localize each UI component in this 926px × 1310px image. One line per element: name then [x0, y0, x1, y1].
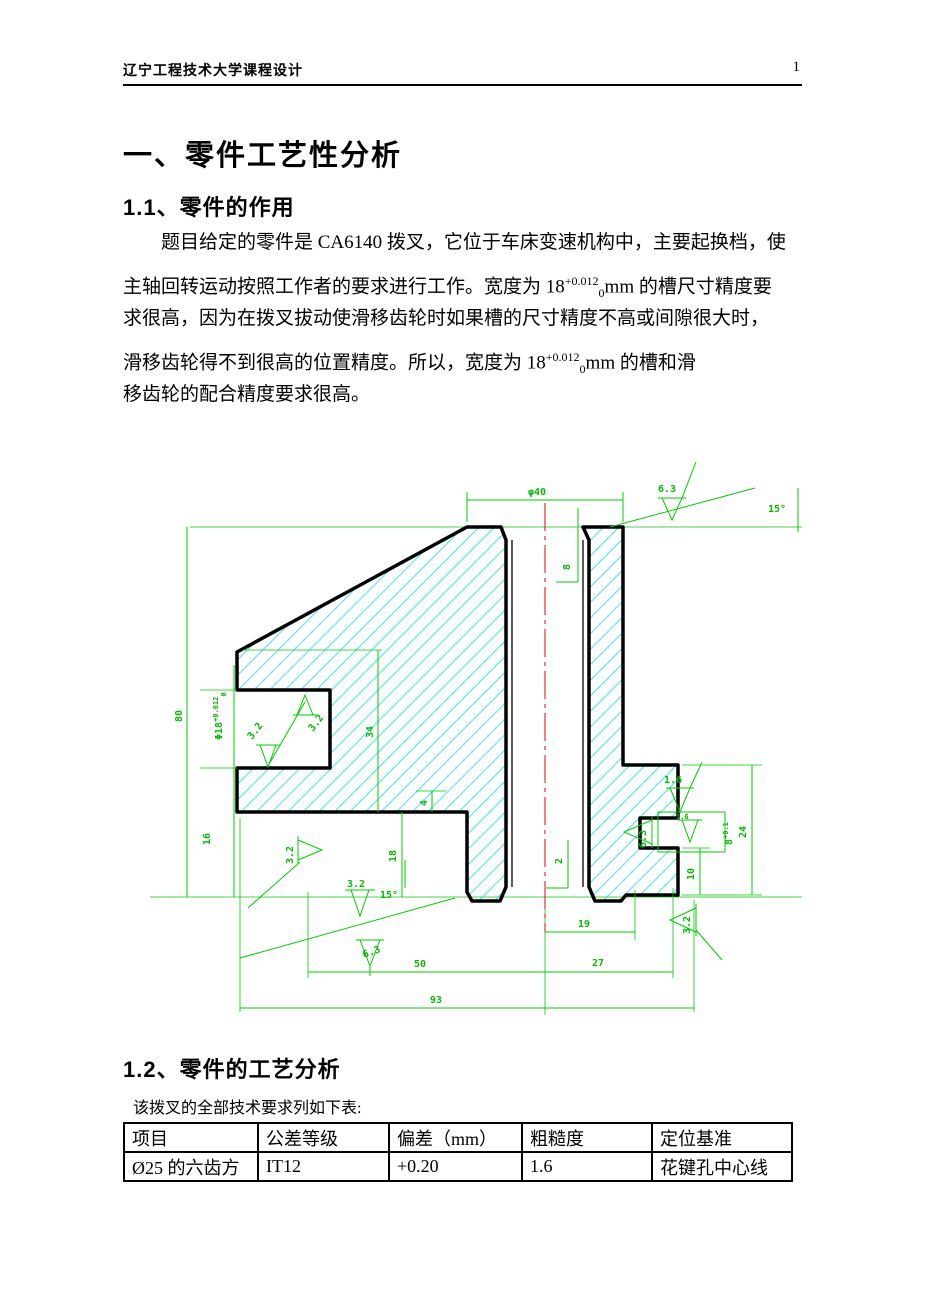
- part-section: [237, 527, 678, 901]
- tolerance-superscript: +0.012: [565, 274, 599, 288]
- roughness-slot-bottom: 3.2: [246, 721, 266, 742]
- paragraph-line: 主轴回转运动按照工作者的要求进行工作。宽度为 18+0.0120mm 的槽尺寸精…: [123, 262, 803, 300]
- chapter-title: 一、零件工艺性分析: [123, 132, 402, 174]
- col-header-tolerance-grade: 公差等级: [258, 1123, 389, 1152]
- body-paragraph: 题目给定的零件是 CA6140 拨叉，它位于车床变速机构中，主要起换档，使 主轴…: [123, 224, 803, 414]
- line-text: 滑移齿轮得不到很高的位置精度。所以，宽度为 18: [123, 352, 546, 373]
- paragraph-line: 求很高，因为在拨叉拔动使滑移齿轮时如果槽的尺寸精度不高或间隙很大时，: [123, 300, 803, 338]
- angle-top: 15°: [768, 504, 786, 515]
- dim-4: 4: [419, 800, 430, 806]
- roughness-side: 3.2: [285, 846, 296, 864]
- roughness-notch-side: 6.3: [638, 830, 649, 848]
- dim-phi40: φ40: [528, 487, 546, 498]
- roughness-slot-top: 3.2: [307, 713, 327, 734]
- page-number: 1: [793, 59, 801, 76]
- dim-phi18: Φ18+0.0120: [212, 692, 228, 740]
- col-header-roughness: 粗糙度: [522, 1123, 652, 1152]
- roughness-mid: 3.2: [347, 879, 365, 890]
- dim-27: 27: [592, 958, 604, 969]
- paragraph-line: 移齿轮的配合精度要求很高。: [123, 376, 803, 414]
- dim-80: 80: [174, 710, 185, 722]
- dim-8: 8: [562, 564, 573, 570]
- dim-19: 19: [578, 919, 590, 930]
- table-row: Ø25 的六齿方 IT12 +0.20 1.6 花键孔中心线: [124, 1152, 792, 1181]
- line-text: mm 的槽尺寸精度要: [605, 276, 772, 297]
- dim-10: 10: [686, 868, 697, 880]
- dim-18: 18: [388, 850, 399, 862]
- cell-datum: 花键孔中心线: [652, 1152, 792, 1181]
- roughness-notch: 1.6: [676, 813, 689, 821]
- section-1-1-heading: 1.1、零件的作用: [123, 190, 295, 222]
- page-header: 辽宁工程技术大学课程设计 1: [123, 56, 802, 86]
- paragraph-line: 题目给定的零件是 CA6140 拨叉，它位于车床变速机构中，主要起换档，使: [123, 224, 803, 262]
- tolerance-superscript: +0.012: [546, 350, 580, 364]
- cell-deviation: +0.20: [389, 1152, 522, 1181]
- col-header-datum: 定位基准: [652, 1123, 792, 1152]
- col-header-deviation: 偏差（mm）: [389, 1123, 522, 1152]
- roughness-top: 6.3: [658, 484, 676, 495]
- part-drawing: φ40 6.3 15° 8 80 Φ18+0.0120 16 34: [130, 440, 810, 1025]
- roughness-bottom: 6.3: [361, 944, 382, 961]
- dim-16: 16: [202, 833, 213, 845]
- col-header-item: 项目: [124, 1123, 258, 1152]
- part-right-half: [583, 527, 678, 901]
- line-text: 主轴回转运动按照工作者的要求进行工作。宽度为 18: [123, 276, 565, 297]
- table-intro: 该拨叉的全部技术要求列如下表:: [133, 1094, 361, 1118]
- table-header-row: 项目 公差等级 偏差（mm） 粗糙度 定位基准: [124, 1123, 792, 1152]
- dim-notch-8: 8+0.1: [722, 822, 735, 845]
- header-title: 辽宁工程技术大学课程设计: [123, 60, 303, 80]
- dim-24: 24: [738, 826, 749, 838]
- paragraph-line: 滑移齿轮得不到很高的位置精度。所以，宽度为 18+0.0120mm 的槽和滑: [123, 338, 803, 376]
- dim-2: 2: [554, 858, 565, 864]
- dim-93: 93: [430, 995, 442, 1006]
- dim-50: 50: [414, 959, 426, 970]
- cell-item: Ø25 的六齿方: [124, 1152, 258, 1181]
- roughness-right: 3.2: [682, 916, 693, 934]
- roughness-lug: 1.6: [664, 775, 682, 786]
- part-left-half: [237, 527, 506, 901]
- cell-roughness: 1.6: [522, 1152, 652, 1181]
- line-text: mm 的槽和滑: [586, 352, 696, 373]
- requirements-table: 项目 公差等级 偏差（mm） 粗糙度 定位基准 Ø25 的六齿方 IT12 +0…: [123, 1122, 793, 1182]
- document-page: 辽宁工程技术大学课程设计 1 一、零件工艺性分析 1.1、零件的作用 题目给定的…: [0, 0, 926, 1310]
- angle-bottom: 15°: [380, 890, 398, 901]
- cell-tolerance-grade: IT12: [258, 1152, 389, 1181]
- section-1-2-heading: 1.2、零件的工艺分析: [123, 1052, 341, 1084]
- dim-34: 34: [365, 726, 376, 738]
